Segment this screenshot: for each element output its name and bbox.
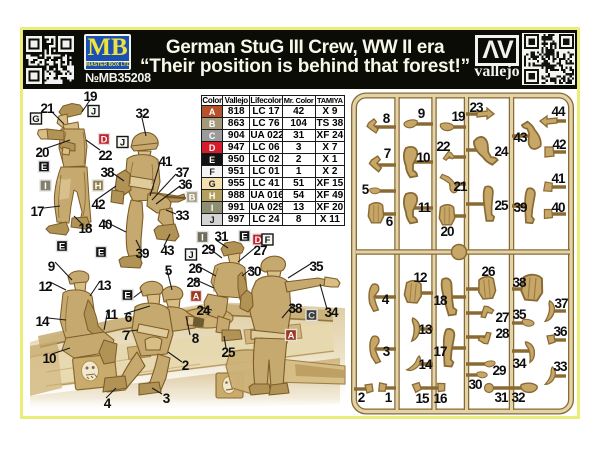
svg-text:38: 38	[100, 165, 115, 180]
svg-text:B: B	[189, 193, 196, 204]
svg-text:42: 42	[552, 137, 566, 152]
svg-text:10: 10	[42, 351, 56, 366]
svg-text:31: 31	[214, 229, 229, 244]
svg-text:28: 28	[495, 326, 510, 341]
svg-text:13: 13	[418, 322, 433, 337]
svg-text:11: 11	[105, 307, 119, 322]
svg-text:I: I	[201, 233, 204, 244]
svg-text:E: E	[59, 242, 65, 253]
svg-text:30: 30	[247, 264, 261, 279]
svg-text:6: 6	[386, 214, 394, 229]
svg-text:17: 17	[30, 204, 44, 219]
svg-text:4: 4	[382, 292, 390, 307]
svg-text:10: 10	[416, 150, 430, 165]
svg-text:36: 36	[178, 177, 193, 192]
svg-text:J: J	[188, 250, 193, 261]
svg-text:30: 30	[468, 377, 482, 392]
svg-text:C: C	[308, 311, 315, 322]
svg-text:26: 26	[188, 261, 203, 276]
svg-text:H: H	[95, 181, 102, 192]
svg-text:E: E	[124, 291, 130, 302]
svg-text:40: 40	[551, 200, 565, 215]
svg-text:7: 7	[123, 328, 130, 343]
svg-text:16: 16	[433, 391, 448, 406]
svg-text:40: 40	[98, 217, 112, 232]
svg-text:18: 18	[433, 293, 448, 308]
svg-text:29: 29	[201, 242, 215, 257]
svg-text:32: 32	[511, 390, 525, 405]
svg-text:34: 34	[324, 305, 339, 320]
svg-text:19: 19	[83, 89, 97, 104]
svg-text:20: 20	[440, 224, 454, 239]
svg-text:2: 2	[182, 358, 189, 373]
svg-text:34: 34	[512, 356, 527, 371]
svg-text:3: 3	[383, 344, 391, 359]
svg-text:35: 35	[512, 307, 527, 322]
svg-text:15: 15	[415, 391, 430, 406]
svg-text:20: 20	[35, 145, 49, 160]
svg-text:9: 9	[418, 106, 425, 121]
svg-text:I: I	[44, 181, 47, 192]
svg-text:12: 12	[38, 279, 52, 294]
svg-text:41: 41	[158, 154, 173, 169]
svg-text:7: 7	[384, 146, 391, 161]
svg-text:39: 39	[513, 200, 527, 215]
svg-text:25: 25	[494, 198, 509, 213]
svg-text:18: 18	[78, 221, 93, 236]
svg-text:A: A	[193, 292, 200, 303]
svg-text:17: 17	[433, 344, 447, 359]
svg-text:31: 31	[494, 390, 509, 405]
svg-text:5: 5	[362, 182, 370, 197]
svg-text:26: 26	[481, 264, 496, 279]
svg-text:28: 28	[186, 275, 201, 290]
svg-text:2: 2	[358, 390, 365, 405]
svg-text:14: 14	[35, 314, 50, 329]
svg-text:41: 41	[551, 171, 566, 186]
svg-text:F: F	[265, 235, 271, 246]
svg-text:24: 24	[494, 144, 509, 159]
svg-text:38: 38	[512, 275, 527, 290]
svg-text:36: 36	[553, 324, 568, 339]
svg-text:J: J	[91, 107, 96, 118]
svg-text:35: 35	[309, 259, 324, 274]
svg-text:8: 8	[383, 111, 391, 126]
svg-text:25: 25	[221, 345, 236, 360]
svg-text:21: 21	[40, 101, 55, 116]
svg-text:37: 37	[554, 296, 568, 311]
svg-text:G: G	[32, 114, 39, 125]
svg-text:J: J	[120, 138, 125, 149]
svg-text:19: 19	[451, 109, 465, 124]
svg-text:9: 9	[48, 259, 55, 274]
svg-text:33: 33	[175, 208, 190, 223]
svg-text:38: 38	[288, 301, 303, 316]
svg-text:42: 42	[91, 197, 105, 212]
svg-text:11: 11	[418, 200, 432, 215]
svg-text:23: 23	[469, 100, 484, 115]
svg-text:12: 12	[413, 270, 427, 285]
svg-text:27: 27	[495, 310, 509, 325]
svg-text:32: 32	[135, 106, 149, 121]
svg-text:13: 13	[97, 278, 112, 293]
svg-text:43: 43	[160, 243, 175, 258]
svg-text:22: 22	[436, 139, 450, 154]
svg-text:5: 5	[165, 263, 173, 278]
svg-text:24: 24	[196, 303, 211, 318]
svg-text:1: 1	[385, 390, 393, 405]
svg-text:44: 44	[551, 104, 566, 119]
svg-text:D: D	[101, 135, 108, 146]
svg-text:22: 22	[98, 148, 112, 163]
svg-text:D: D	[255, 235, 262, 246]
svg-text:43: 43	[513, 130, 528, 145]
svg-text:29: 29	[492, 363, 506, 378]
svg-text:14: 14	[418, 357, 433, 372]
svg-text:39: 39	[135, 246, 149, 261]
svg-text:21: 21	[453, 179, 468, 194]
svg-text:A: A	[288, 331, 295, 342]
svg-text:E: E	[41, 162, 47, 173]
svg-text:33: 33	[553, 359, 568, 374]
svg-text:E: E	[241, 232, 247, 243]
svg-text:E: E	[98, 248, 104, 259]
